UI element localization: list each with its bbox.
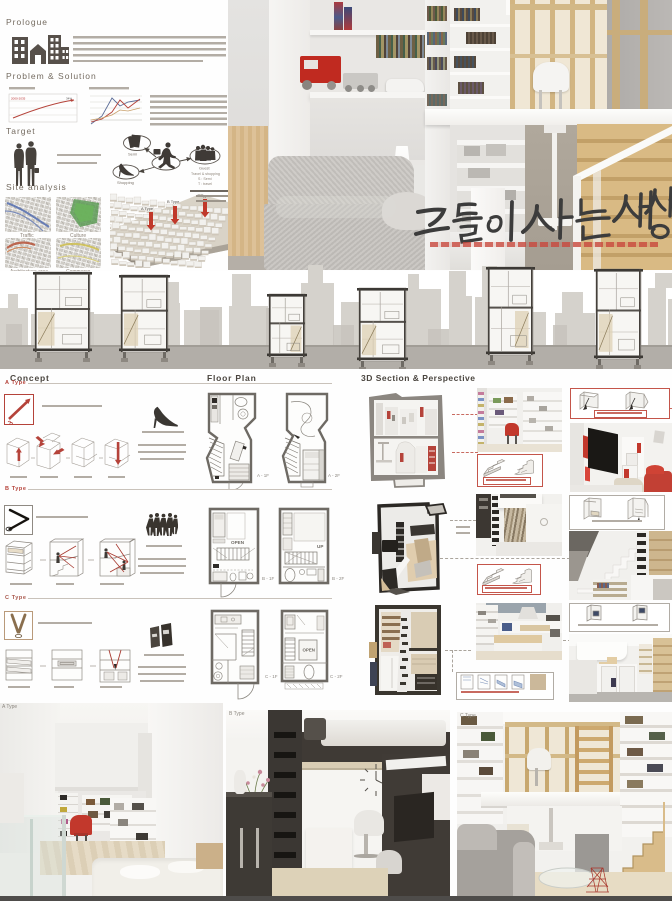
svg-text:A Type: A Type (141, 206, 154, 211)
svg-text:T : travel: T : travel (198, 182, 212, 186)
svg-text:Travel & shopping: Travel & shopping (191, 172, 220, 176)
svg-text:2000-2035: 2000-2035 (11, 97, 26, 101)
svg-text:UP: UP (317, 544, 323, 549)
svg-text:S : Semi: S : Semi (198, 177, 212, 181)
svg-text:OPEN: OPEN (231, 540, 245, 545)
svg-text:B Type: B Type (167, 199, 180, 204)
svg-text:OPEN: OPEN (303, 648, 315, 653)
svg-text:Shopping: Shopping (117, 180, 134, 185)
svg-text:Semi: Semi (128, 152, 137, 157)
svg-text:Guest: Guest (199, 166, 211, 171)
